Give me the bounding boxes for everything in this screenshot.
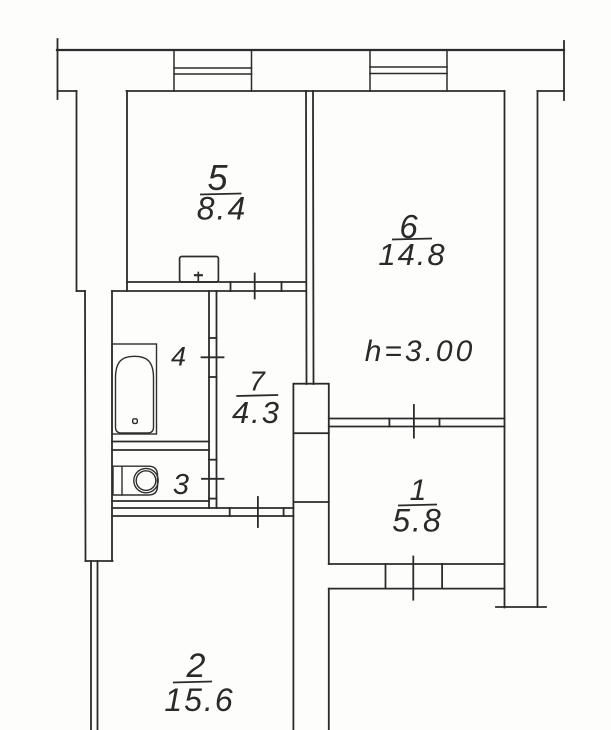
svg-text:4.3: 4.3: [232, 395, 281, 430]
svg-text:8.4: 8.4: [197, 191, 247, 227]
svg-text:4: 4: [171, 342, 186, 372]
svg-text:3: 3: [173, 469, 189, 501]
svg-text:5.8: 5.8: [392, 503, 442, 539]
svg-text:h=3.00: h=3.00: [365, 335, 476, 368]
svg-text:2: 2: [186, 647, 206, 685]
svg-text:7: 7: [249, 366, 266, 397]
svg-text:15.6: 15.6: [164, 682, 234, 718]
svg-text:14.8: 14.8: [378, 237, 446, 272]
